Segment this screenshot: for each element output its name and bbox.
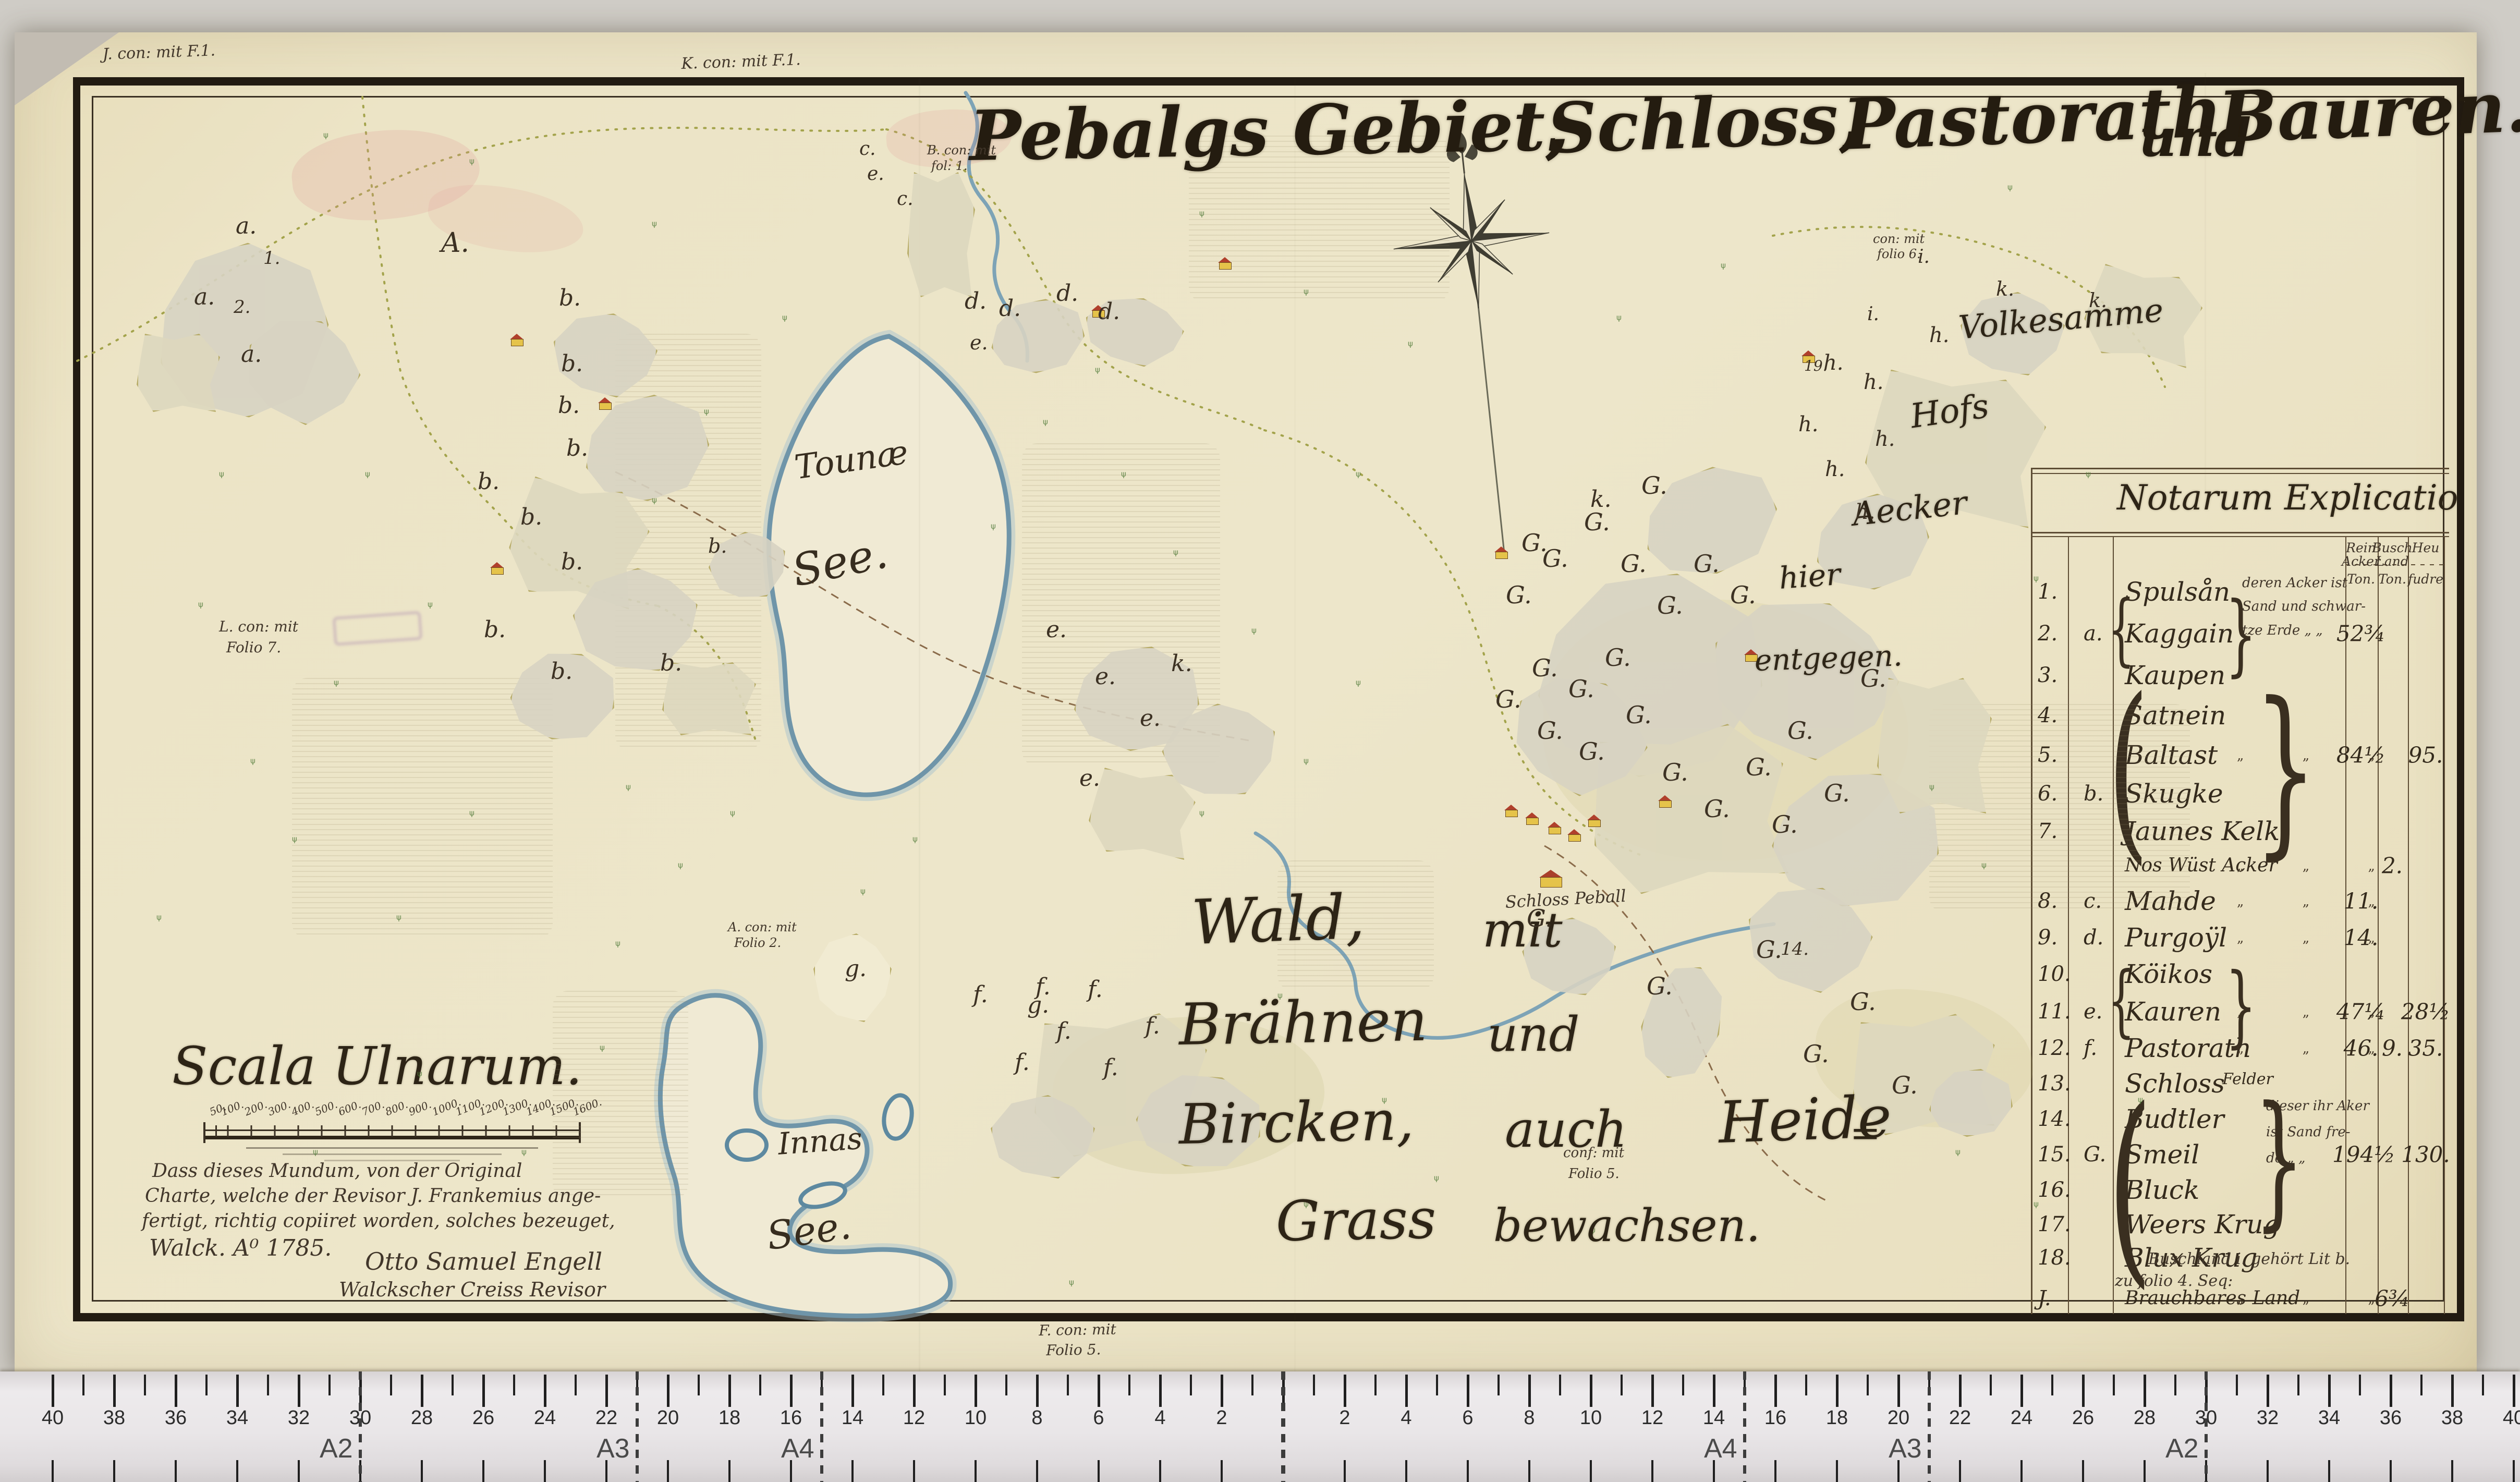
ruler-tick	[267, 1375, 269, 1395]
ruler-bottom-tick	[1528, 1460, 1530, 1482]
scala-signature-line: Otto Samuel Engell	[365, 1249, 602, 1273]
legend-note-line: Sand und schwar-	[2242, 600, 2366, 613]
house-icon	[1658, 795, 1672, 807]
ruler-bottom-tick	[1405, 1460, 1407, 1482]
grass-tuft-icon: ψ	[704, 407, 709, 416]
ruler-bottom-tick	[1036, 1460, 1038, 1482]
legend-footnote: Buschland i. gehört Lit b.	[2148, 1252, 2350, 1267]
legend-row-number: 10.	[2038, 964, 2071, 985]
parcel-letter: k.	[1171, 652, 1192, 675]
ruler-paper-size-label: A3	[596, 1433, 630, 1464]
grass-tuft-icon: ψ	[1095, 365, 1100, 374]
ruler-tick	[2144, 1375, 2146, 1407]
grass-tuft-icon: ψ	[652, 219, 657, 228]
parcel-letter: G.	[1532, 656, 1558, 680]
scala-signature-line: Walckscher Creiss Revisor	[339, 1280, 605, 1299]
legend-row-number: 18.	[2038, 1247, 2071, 1268]
ruler-tick	[1036, 1375, 1039, 1407]
parcel-letter: G.	[1694, 552, 1720, 576]
parcel-letter: 14.	[1781, 940, 1809, 958]
ruler-number: 36	[165, 1407, 187, 1429]
legend-brace: }	[2254, 1075, 2305, 1245]
ruler-bottom-tick	[2451, 1460, 2453, 1482]
ruler-bottom-tick	[2082, 1460, 2084, 1482]
grass-tuft-icon: ψ	[2007, 183, 2013, 192]
ruler-bottom-tick	[851, 1460, 854, 1482]
grass-tuft-icon: ψ	[1929, 782, 1934, 792]
parcel-letter: G.	[1704, 797, 1730, 821]
parcel-letter: e.	[867, 165, 884, 184]
legend-brace: {	[2108, 955, 2135, 1046]
ruler-tick	[1682, 1375, 1684, 1395]
lake-label: Innas	[777, 1123, 863, 1159]
grass-tuft-icon: ψ	[615, 939, 620, 948]
parcel-letter: c.	[897, 190, 914, 209]
grass-tuft-icon: ψ	[1069, 1278, 1074, 1287]
parcel-letter: G.	[1772, 812, 1798, 836]
castle-icon	[1539, 870, 1562, 888]
ruler-tick	[236, 1375, 239, 1407]
grass-tuft-icon: ψ	[250, 756, 255, 766]
ruler-tick	[1528, 1375, 1531, 1407]
legend-row-name: Spulsån	[2125, 579, 2230, 605]
ruler-tick	[1990, 1375, 1992, 1395]
legend-row-value: 14.	[2332, 925, 2390, 951]
ruler-tick	[2451, 1375, 2454, 1407]
ruler-bottom-tick	[728, 1460, 731, 1482]
ruler-number: 20	[657, 1407, 679, 1429]
parcel-letter: h.	[1864, 372, 1883, 393]
legend-row-letter: G.	[2084, 1144, 2106, 1165]
legend-brace: }	[2225, 583, 2256, 686]
parcel-letter: b.	[566, 437, 588, 460]
legend-top-line2	[2031, 473, 2449, 474]
parcel-letter: a.	[194, 286, 215, 309]
grass-tuft-icon: ψ	[1721, 261, 1726, 270]
legend-brace: (	[2108, 1065, 2152, 1307]
ruler-tick	[759, 1375, 761, 1395]
scale-bar-tick	[298, 1125, 299, 1137]
grass-tuft-icon: ψ	[652, 495, 657, 505]
parcel-letter: G.	[1605, 646, 1631, 670]
legend-row-number: 17.	[2038, 1214, 2071, 1235]
ruler-number: 28	[2134, 1407, 2156, 1429]
ruler-number: 6	[1093, 1407, 1104, 1429]
ruler-number: 16	[1764, 1407, 1786, 1429]
ruler-tick	[1467, 1375, 1469, 1407]
ruler-tick	[944, 1375, 946, 1395]
ruler-tick	[1313, 1375, 1315, 1395]
ruler-tick	[1098, 1375, 1100, 1407]
scale-bar-tick	[227, 1125, 229, 1137]
ruler-number: 12	[903, 1407, 925, 1429]
margin-folio-note: J. con: mit F.1.	[102, 43, 215, 63]
grass-tuft-icon: ψ	[365, 469, 370, 479]
ruler-bottom-tick	[236, 1460, 238, 1482]
parcel-letter: G.	[1626, 703, 1652, 727]
house-wall	[511, 339, 524, 346]
ruler-bottom-tick	[2020, 1460, 2023, 1482]
grass-tuft-icon: ψ	[2086, 469, 2091, 479]
parcel-letter: a.	[236, 215, 257, 238]
parcel-letter: h.	[1875, 429, 1895, 450]
scale-bar-tick	[251, 1125, 252, 1137]
ruler-bottom-tick	[1159, 1460, 1161, 1482]
ruler-number: 8	[1031, 1407, 1042, 1429]
land-parcel	[907, 172, 975, 297]
grass-tuft-icon: ψ	[156, 913, 162, 922]
parcel-letter: b.	[551, 660, 573, 683]
legend-row-number: 3.	[2038, 665, 2058, 686]
house-wall	[1659, 800, 1672, 808]
parcel-letter: G.	[1892, 1073, 1918, 1097]
ruler-tick	[2174, 1375, 2176, 1395]
legend-row-number: 2.	[2038, 623, 2058, 644]
legend-top-line	[2031, 468, 2449, 469]
house-icon	[490, 562, 504, 574]
ruler-number: 34	[2318, 1407, 2340, 1429]
grass-tuft-icon: ψ	[198, 600, 203, 609]
ruler-tick	[2082, 1375, 2085, 1407]
parcel-letter: A.	[441, 229, 469, 257]
ruler-tick	[482, 1375, 485, 1407]
house-wall	[1526, 818, 1539, 825]
scale-bar-tick	[345, 1125, 346, 1137]
ruler-number: 24	[534, 1407, 556, 1429]
house-wall	[1219, 262, 1232, 270]
parcel-letter: G.	[1641, 473, 1667, 497]
ruler-number: 12	[1641, 1407, 1663, 1429]
ruler-number: 32	[288, 1407, 310, 1429]
ruler-tick	[1251, 1375, 1253, 1395]
house-wall	[491, 567, 504, 575]
grass-tuft-icon: ψ	[417, 1069, 422, 1078]
legend-row-name: Purgoÿl	[2125, 925, 2227, 951]
ruler-number: 4	[1154, 1407, 1165, 1429]
ruler-tick	[2513, 1375, 2515, 1407]
ruler-tick	[1867, 1375, 1869, 1395]
legend-row-number: J.	[2038, 1288, 2051, 1309]
scale-bar-tick	[462, 1125, 464, 1137]
grass-tuft-icon: ψ	[2034, 574, 2039, 583]
scale-bar-tick	[368, 1125, 370, 1137]
legend-row-number: 12.	[2038, 1038, 2071, 1059]
forest-inscription-word: auch	[1505, 1104, 1627, 1155]
grass-tuft-icon: ψ	[323, 130, 328, 140]
legend-row-number: 13.	[2038, 1073, 2071, 1094]
ruler-tick	[390, 1375, 392, 1395]
legend-column-header: Land	[2376, 555, 2409, 568]
parcel-letter: e.	[970, 333, 988, 353]
parcel-letter: 2.	[234, 298, 250, 316]
grass-tuft-icon: ψ	[782, 313, 787, 322]
ruler-tick	[1713, 1375, 1715, 1407]
legend-column-line	[2408, 536, 2409, 1314]
parcel-letter: e.	[1140, 707, 1161, 730]
grass-tuft-icon: ψ	[1251, 626, 1257, 635]
ruler-tick	[298, 1375, 300, 1407]
ruler-tick	[1221, 1375, 1223, 1407]
ruler-paper-size-mark	[636, 1371, 639, 1482]
ruler-bottom-tick	[1467, 1460, 1469, 1482]
ruler-bottom-tick	[975, 1460, 977, 1482]
scale-bar-tick	[509, 1125, 510, 1137]
legend-row-value: 28½	[2397, 999, 2454, 1025]
ruler-tick	[1498, 1375, 1500, 1395]
grass-tuft-icon: ψ	[1173, 548, 1178, 557]
measuring-ruler: 2244668810101212141416161818202022222424…	[0, 1371, 2520, 1482]
scale-bar-tick	[321, 1125, 323, 1137]
parcel-letter: f.	[1088, 978, 1103, 1001]
ruler-number: 24	[2011, 1407, 2032, 1429]
ruler-tick	[452, 1375, 454, 1395]
grass-tuft-icon: ψ	[1304, 287, 1309, 296]
legend-column-header: fudre	[2408, 573, 2443, 586]
parcel-letter: 1.	[263, 249, 280, 267]
parcel-letter: b.	[558, 394, 580, 417]
ruler-number: 26	[2072, 1407, 2094, 1429]
grass-tuft-icon: ψ	[2034, 1199, 2039, 1209]
house-wall	[1549, 827, 1561, 834]
legend-row-value: 95.	[2397, 743, 2454, 768]
legend-row-value: 11.	[2332, 889, 2390, 914]
parcel-letter: G.	[1521, 531, 1548, 555]
grass-tuft-icon: ψ	[1304, 756, 1309, 766]
parcel-letter: f.	[1103, 1056, 1118, 1079]
legend-row-value: 6¾	[2364, 1286, 2421, 1311]
parcel-letter: G.	[1527, 906, 1553, 930]
shading-hatch	[553, 991, 688, 1199]
legend-row-number: 15.	[2038, 1144, 2071, 1165]
legend-note-line: deren Acker ist	[2242, 576, 2347, 590]
grass-tuft-icon: ψ	[396, 913, 401, 922]
ruler-number: 26	[472, 1407, 494, 1429]
ruler-number: 18	[1826, 1407, 1848, 1429]
ruler-number: 14	[842, 1407, 863, 1429]
house-wall	[1540, 877, 1562, 888]
scala-attestation-line: Walck. A⁰ 1785.	[149, 1237, 332, 1260]
ruler-tick	[667, 1375, 669, 1407]
ruler-number: 4	[1401, 1407, 1411, 1429]
parcel-letter: f.	[1015, 1051, 1030, 1074]
grass-tuft-icon: ψ	[1356, 678, 1361, 687]
grass-tuft-icon: ψ	[313, 1147, 318, 1157]
legend-row-value: 130.	[2397, 1142, 2454, 1168]
legend-row-letter: a.	[2084, 623, 2103, 644]
ruler-number: 34	[226, 1407, 248, 1429]
legend-column-header: Rein	[2346, 541, 2376, 554]
ruler-bottom-tick	[2267, 1460, 2269, 1482]
ruler-tick	[1436, 1375, 1438, 1395]
land-parcel	[137, 334, 220, 412]
grass-tuft-icon: ψ	[626, 782, 631, 792]
parcel-letter: b.	[660, 652, 682, 675]
legend-row-number: 16.	[2038, 1180, 2071, 1200]
margin-folio-note: Folio 5.	[1046, 1342, 1101, 1358]
parcel-letter: k.	[2089, 290, 2107, 310]
ruler-number: 40	[42, 1407, 64, 1429]
ruler-paper-size-label: A4	[1704, 1433, 1737, 1464]
parcel-letter: G.	[1495, 687, 1521, 711]
ruler-bottom-tick	[421, 1460, 423, 1482]
grass-tuft-icon: ψ	[219, 469, 224, 479]
grass-tuft-icon: ψ	[1199, 808, 1204, 818]
parcel-letter: b.	[520, 506, 542, 529]
scale-bar-tick	[439, 1125, 440, 1137]
grass-tuft-icon: ψ	[1616, 313, 1622, 322]
ruler-tick	[544, 1375, 546, 1407]
ruler-tick	[113, 1375, 116, 1407]
ruler-paper-size-label: A3	[1889, 1433, 1922, 1464]
map-inscription: L. con: mit	[219, 619, 298, 634]
ruler-paper-size-label: A2	[320, 1433, 353, 1464]
parcel-letter: G.	[1621, 552, 1647, 576]
legend-brace: }	[2225, 954, 2256, 1058]
parcel-letter: d.	[965, 290, 987, 313]
parcel-letter: G.	[1537, 719, 1563, 743]
scala-attestation-line: fertigt, richtig copiiret worden, solche…	[142, 1212, 615, 1231]
ruler-tick	[1836, 1375, 1839, 1407]
ruler-tick	[1190, 1375, 1192, 1395]
shading-hatch	[292, 678, 553, 939]
ruler-tick	[2020, 1375, 2023, 1407]
ruler-tick	[698, 1375, 700, 1395]
legend-row-value: 52¾	[2332, 621, 2390, 647]
house-icon	[1548, 822, 1561, 833]
ruler-tick	[575, 1375, 577, 1395]
parcel-letter: g.	[845, 957, 867, 980]
ruler-bottom-tick	[2390, 1460, 2392, 1482]
ruler-tick	[2359, 1375, 2361, 1395]
legend-column-header: Ton.	[2347, 573, 2375, 586]
parcel-letter: G.	[1860, 666, 1886, 690]
scala-heading: Scala Ulnarum.	[172, 1040, 582, 1092]
ruler-bottom-tick	[2513, 1460, 2515, 1482]
grass-tuft-icon: ψ	[2138, 1095, 2143, 1104]
ruler-bottom-tick	[1836, 1460, 1838, 1482]
house-icon	[1494, 546, 1508, 558]
parcel-letter: f.	[1145, 1015, 1160, 1038]
ruler-tick	[1805, 1375, 1807, 1395]
land-parcel	[1877, 678, 1992, 813]
parcel-letter: G.	[1579, 739, 1605, 763]
legend-header: Notarum Explicatio	[2117, 481, 2458, 515]
legend-row-value: 35.	[2397, 1036, 2454, 1061]
house-icon	[598, 397, 612, 409]
grass-tuft-icon: ψ	[521, 1147, 527, 1157]
grass-tuft-icon: ψ	[1121, 469, 1126, 479]
ruler-tick	[2390, 1375, 2392, 1407]
legend-column-header: Acker	[2342, 555, 2380, 568]
hof-inscription-word: Hofs	[1908, 390, 1991, 433]
ruler-number: 16	[780, 1407, 802, 1429]
ruler-tick	[421, 1375, 423, 1407]
grass-tuft-icon: ψ	[1199, 209, 1204, 218]
ruler-tick	[2482, 1375, 2484, 1395]
map-inscription: fol: 1.	[931, 160, 968, 172]
ruler-tick	[1405, 1375, 1408, 1407]
margin-folio-note: F. con: mit	[1039, 1322, 1116, 1338]
lake-label: See.	[764, 1206, 854, 1256]
legend-row-number: 14.	[2038, 1109, 2071, 1129]
parcel-letter: k.	[1590, 488, 1612, 511]
ruler-number: 22	[595, 1407, 617, 1429]
ruler-number: 40	[2503, 1407, 2520, 1429]
ruler-paper-size-mark	[1928, 1371, 1931, 1482]
ruler-bottom-tick	[1590, 1460, 1592, 1482]
forest-inscription-word: =	[1850, 1115, 1881, 1151]
forest-inscription-word: Wald,	[1190, 885, 1366, 953]
parcel-letter: b.	[561, 551, 583, 574]
legend-row-name: Kauren	[2125, 999, 2221, 1025]
ruler-bottom-tick	[1098, 1460, 1100, 1482]
ruler-tick	[1374, 1375, 1377, 1395]
ruler-tick	[1651, 1375, 1654, 1407]
ruler-number: 36	[2380, 1407, 2402, 1429]
legend-row-letter: d.	[2084, 927, 2103, 948]
legend-header-line2	[2031, 536, 2449, 537]
ruler-tick	[882, 1375, 884, 1395]
ruler-tick	[1590, 1375, 1592, 1407]
ruler-tick	[328, 1375, 331, 1395]
parcel-letter: i.	[1918, 248, 1930, 266]
ruler-paper-size-mark	[2205, 1371, 2208, 1482]
legend-row-name: Köikos	[2125, 961, 2212, 987]
ruler-bottom-tick	[1344, 1460, 1346, 1482]
legend-column-header: Ton.	[2378, 573, 2406, 586]
ruler-bottom-tick	[667, 1460, 669, 1482]
legend-row-value: 47¼	[2332, 999, 2390, 1025]
scale-bar-end-cross	[203, 1122, 205, 1143]
ruler-tick	[52, 1375, 54, 1407]
legend-brace: }	[2254, 663, 2317, 876]
hof-inscription-word: hier	[1778, 559, 1842, 593]
ruler-paper-size-label: A2	[2165, 1433, 2199, 1464]
ruler-tick	[1774, 1375, 1777, 1407]
house-icon	[1525, 812, 1539, 824]
ruler-paper-size-mark	[359, 1371, 362, 1482]
house-wall	[599, 403, 612, 410]
grass-tuft-icon: ψ	[730, 808, 735, 818]
ruler-bottom-tick	[2328, 1460, 2330, 1482]
paper-crease	[1294, 78, 1296, 1371]
ruler-number: 6	[1462, 1407, 1473, 1429]
ruler-tick	[513, 1375, 515, 1395]
ruler-tick	[2328, 1375, 2331, 1407]
scale-bar-shadow-line	[246, 1147, 538, 1149]
ruler-tick	[205, 1375, 208, 1395]
parcel-letter: k.	[1996, 279, 2014, 299]
scala-attestation-line: Dass dieses Mundum, von der Original	[152, 1162, 522, 1181]
legend-row-number: 11.	[2038, 1001, 2071, 1022]
parcel-letter: G.	[1746, 755, 1772, 779]
ruler-tick	[728, 1375, 731, 1407]
parcel-letter: d.	[1098, 300, 1120, 323]
parcel-letter: b.	[561, 353, 583, 375]
ruler-tick	[2051, 1375, 2053, 1395]
parcel-letter: h.	[1929, 325, 1949, 346]
ruler-center-mark	[1281, 1371, 1285, 1482]
ruler-bottom-tick	[52, 1460, 54, 1482]
ruler-bottom-tick	[1221, 1460, 1223, 1482]
parcel-letter: e.	[1046, 618, 1067, 641]
parcel-letter: d.	[999, 297, 1021, 320]
scala-attestation-line: Charte, welche der Revisor J. Frankemius…	[145, 1187, 601, 1206]
ruler-number: 38	[2441, 1407, 2463, 1429]
grass-tuft-icon: ψ	[678, 860, 683, 870]
ruler-tick	[144, 1375, 146, 1395]
ruler-bottom-tick	[1774, 1460, 1776, 1482]
